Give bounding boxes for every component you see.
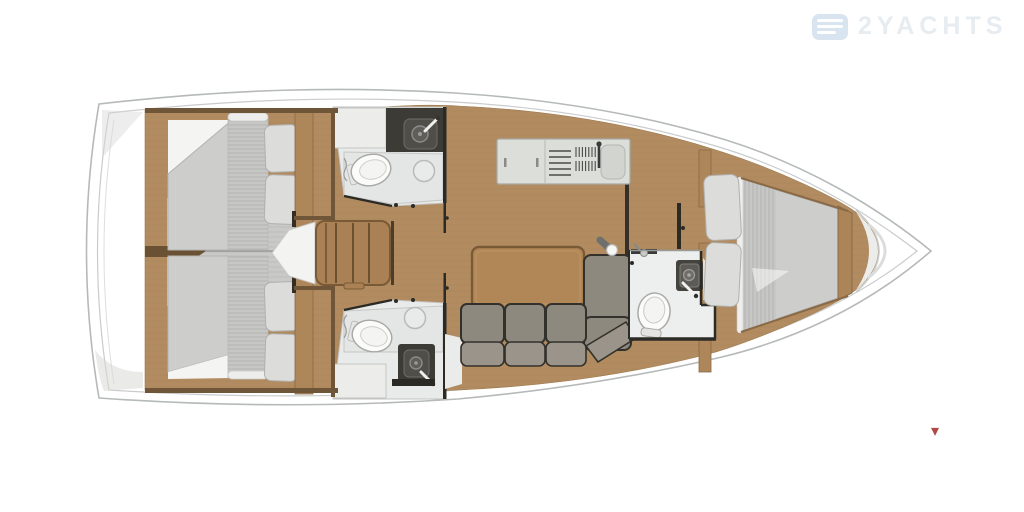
berth-quilt [228,118,268,250]
floor-plan-drawing [0,0,1024,512]
watermark-brand-text: 2YACHTS [858,12,1007,41]
companionway-frame [391,221,394,285]
pillow [703,174,741,241]
galley-faucet-head [596,141,601,146]
berth-mattress [168,256,232,372]
door-handle [411,298,415,302]
cabin-doorpost [292,277,296,293]
salon [461,240,636,366]
pillow [703,242,741,307]
vberth-quilt [741,179,776,331]
berth-side-board [838,206,852,300]
sofa-back-cushion [505,304,545,343]
sofa-back-cushion [461,304,504,343]
headboard [295,112,313,234]
stub-wall [294,216,335,220]
berth-quilt [228,256,268,378]
door-handle [630,261,634,265]
door-handle [681,226,685,230]
2yachts-waves-logo-icon [812,14,848,40]
galley-sink [601,145,625,179]
salon-table [472,247,584,308]
cabinet-handle [536,158,539,167]
sink-drain [414,361,418,365]
faucet-head [694,294,698,298]
shower-drain [405,308,426,329]
sink-drain [687,273,691,277]
cabinet-handle [504,158,507,167]
watermark: 2YACHTS [812,12,1007,41]
sofa-back-cushion [546,304,586,343]
mid-bulkhead-upper [331,108,335,219]
red-arrow-marker: ▾ [931,424,939,440]
bottom-step [344,283,364,289]
head-wall-right [443,107,447,203]
aft-bottom-wall [145,388,338,393]
entry-floor [445,334,462,389]
sofa-chaise-back [584,255,631,319]
galley [497,139,630,184]
sink-drain [418,132,422,136]
headboard [295,272,313,394]
sofa-seat-cushion [546,342,586,366]
sofa-seat-cushion [505,342,545,366]
stub-wall [294,286,335,290]
yacht-floor-plan: 2YACHTS ▾ [0,0,1024,512]
duvet-roll [228,371,268,379]
pillow [264,124,299,172]
locker [334,364,386,398]
door-hinge [394,299,398,303]
faucet-head [436,116,441,121]
side-door-handle [445,216,449,220]
forward-cabin-door [677,203,681,249]
side-door-handle [445,286,449,290]
aft-top-wall [145,108,338,113]
mid-bulkhead-lower [331,287,335,397]
door-hinge [394,203,398,207]
pillow [264,333,299,381]
door-handle [411,204,415,208]
shower-drain [414,161,435,182]
counter-edge [392,379,435,386]
locker [334,108,386,148]
sofa-seat-cushion [461,342,504,366]
duvet-roll [228,113,268,121]
head-floor-ext [700,304,716,339]
mast-post-cap [607,245,618,256]
